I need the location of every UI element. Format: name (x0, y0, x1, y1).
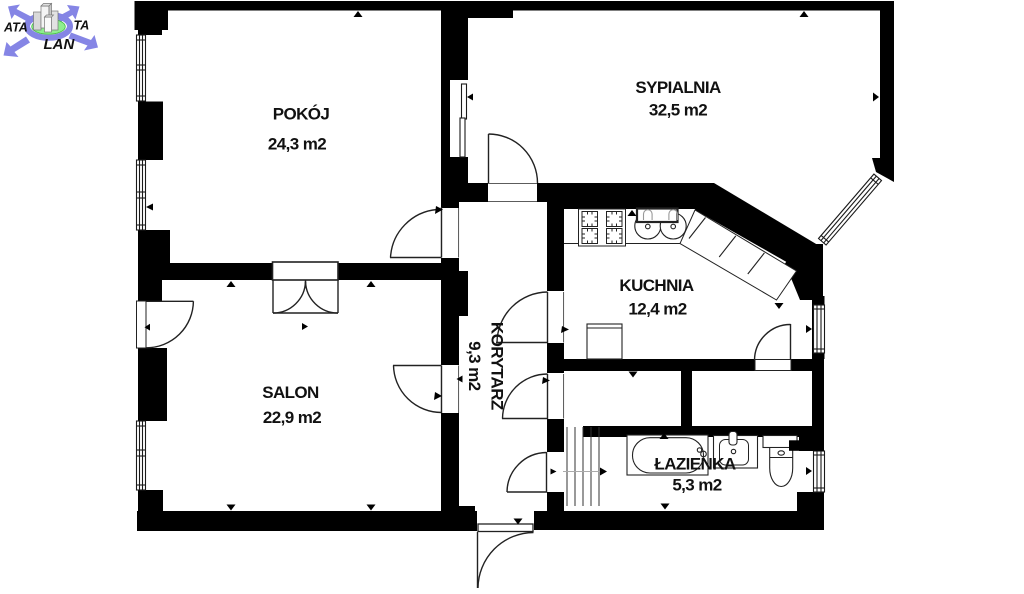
svg-text:5,3 m2: 5,3 m2 (672, 476, 721, 495)
svg-text:TA: TA (74, 19, 90, 33)
svg-text:24,3 m2: 24,3 m2 (268, 135, 326, 154)
svg-text:12,4 m2: 12,4 m2 (628, 300, 686, 319)
svg-text:22,9 m2: 22,9 m2 (263, 408, 321, 427)
svg-text:32,5 m2: 32,5 m2 (649, 101, 707, 120)
svg-text:ATA: ATA (3, 21, 28, 35)
svg-text:KORYTARZ: KORYTARZ (487, 322, 506, 410)
svg-text:LAN: LAN (44, 36, 76, 53)
svg-text:9,3 m2: 9,3 m2 (465, 341, 484, 390)
svg-text:KUCHNIA: KUCHNIA (619, 276, 694, 295)
svg-text:SYPIALNIA: SYPIALNIA (635, 78, 721, 97)
svg-text:POKÓJ: POKÓJ (273, 105, 330, 124)
svg-text:SALON: SALON (262, 383, 319, 402)
svg-text:ŁAZIENKA: ŁAZIENKA (654, 455, 735, 474)
